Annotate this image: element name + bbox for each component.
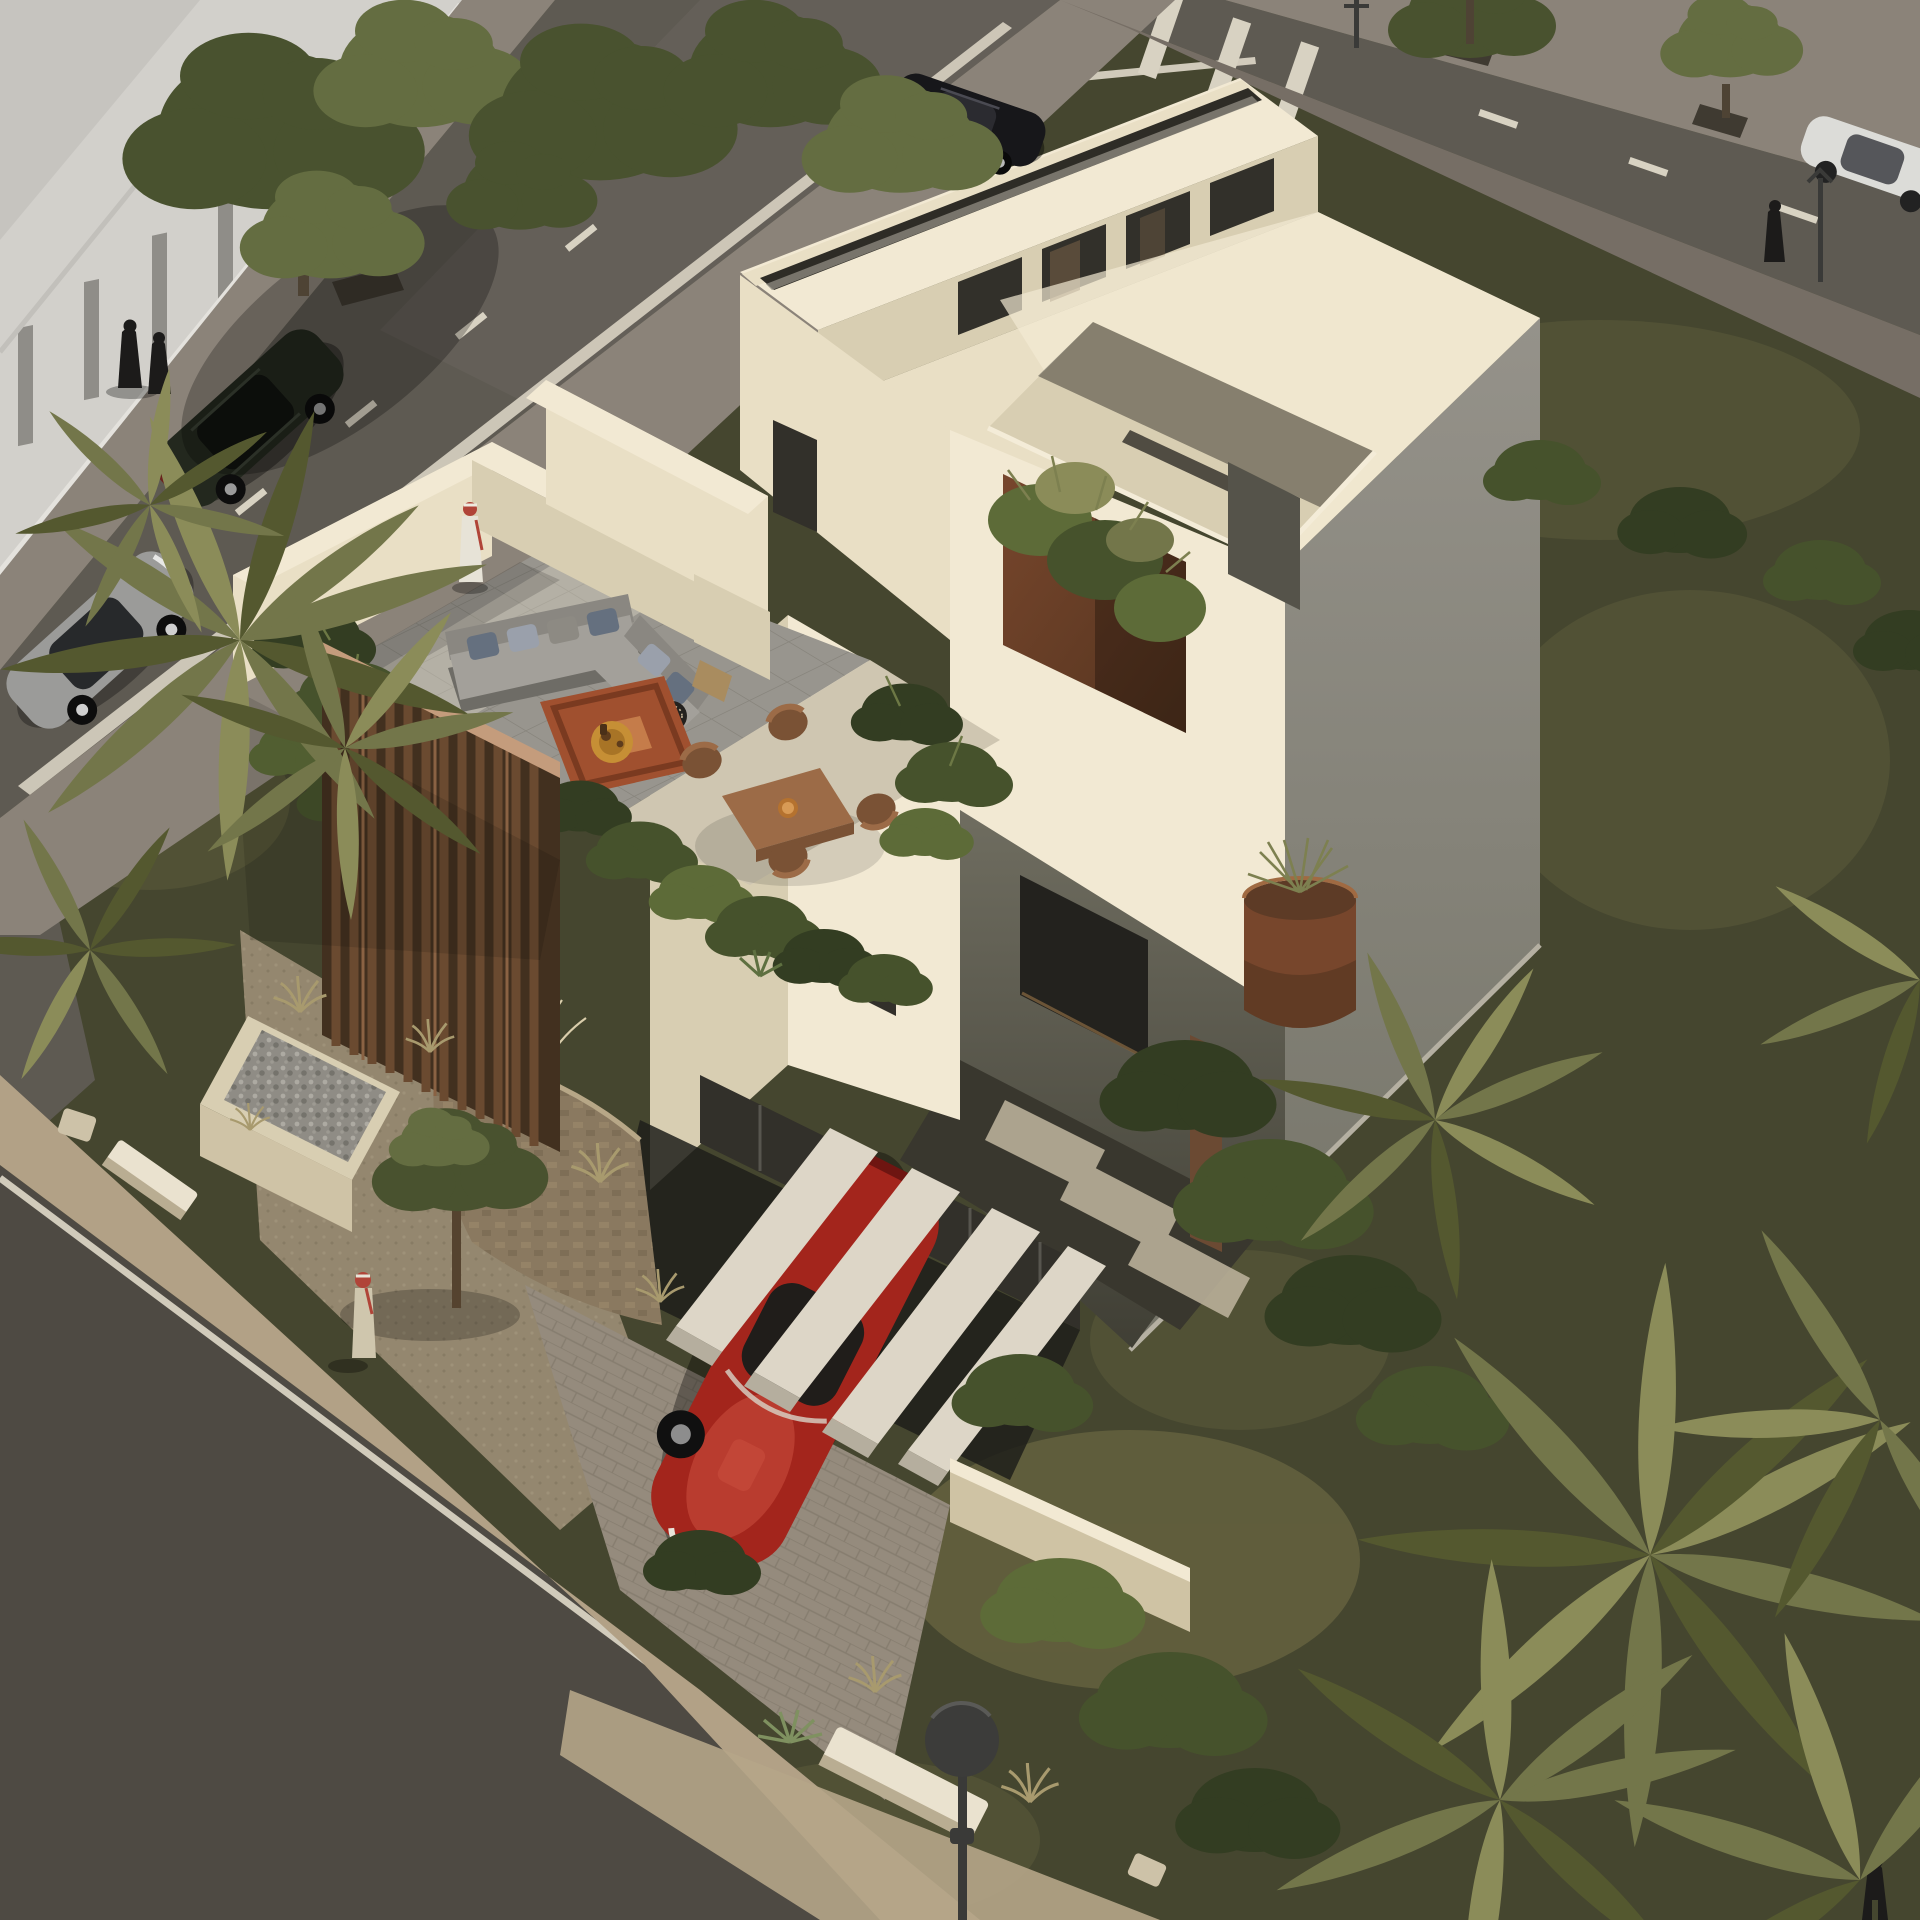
render-canvas bbox=[0, 0, 1920, 1920]
aerial-villa-render bbox=[0, 0, 1920, 1920]
